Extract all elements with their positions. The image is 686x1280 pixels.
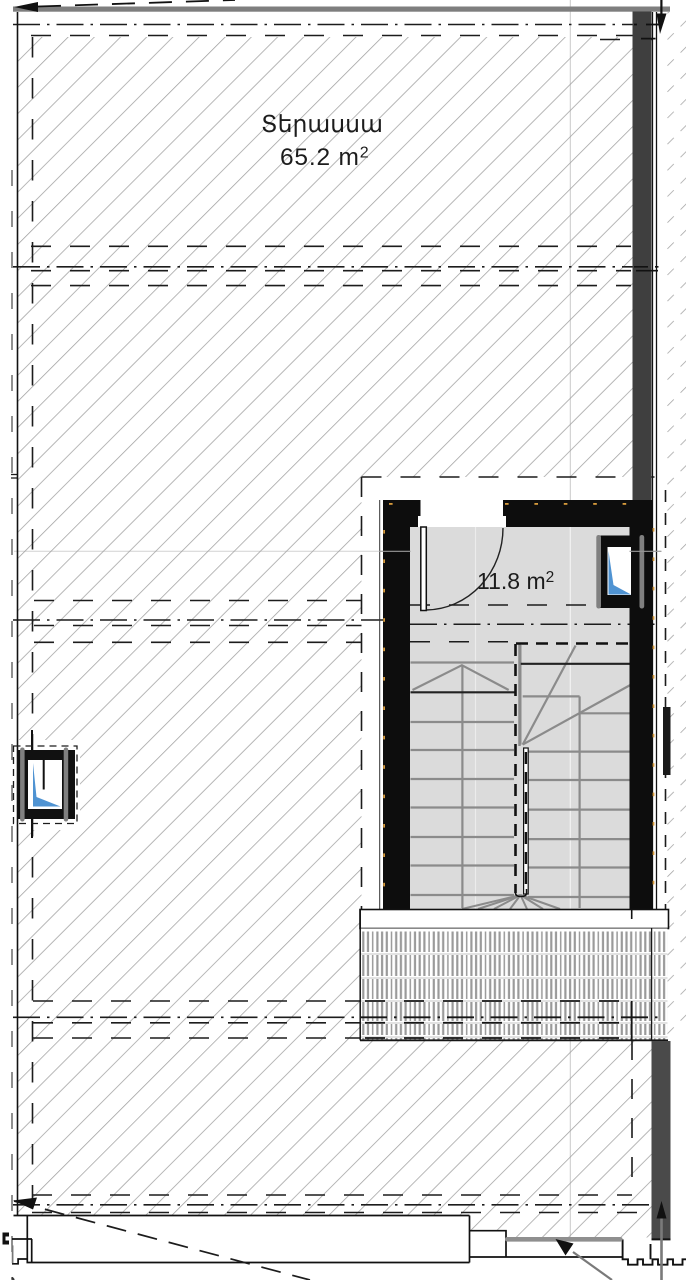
svg-text:65.2 m2: 65.2 m2: [280, 144, 369, 171]
svg-text:11.8 m2: 11.8 m2: [477, 568, 554, 594]
svg-text:Տերասսա: Տերասսա: [261, 111, 383, 137]
